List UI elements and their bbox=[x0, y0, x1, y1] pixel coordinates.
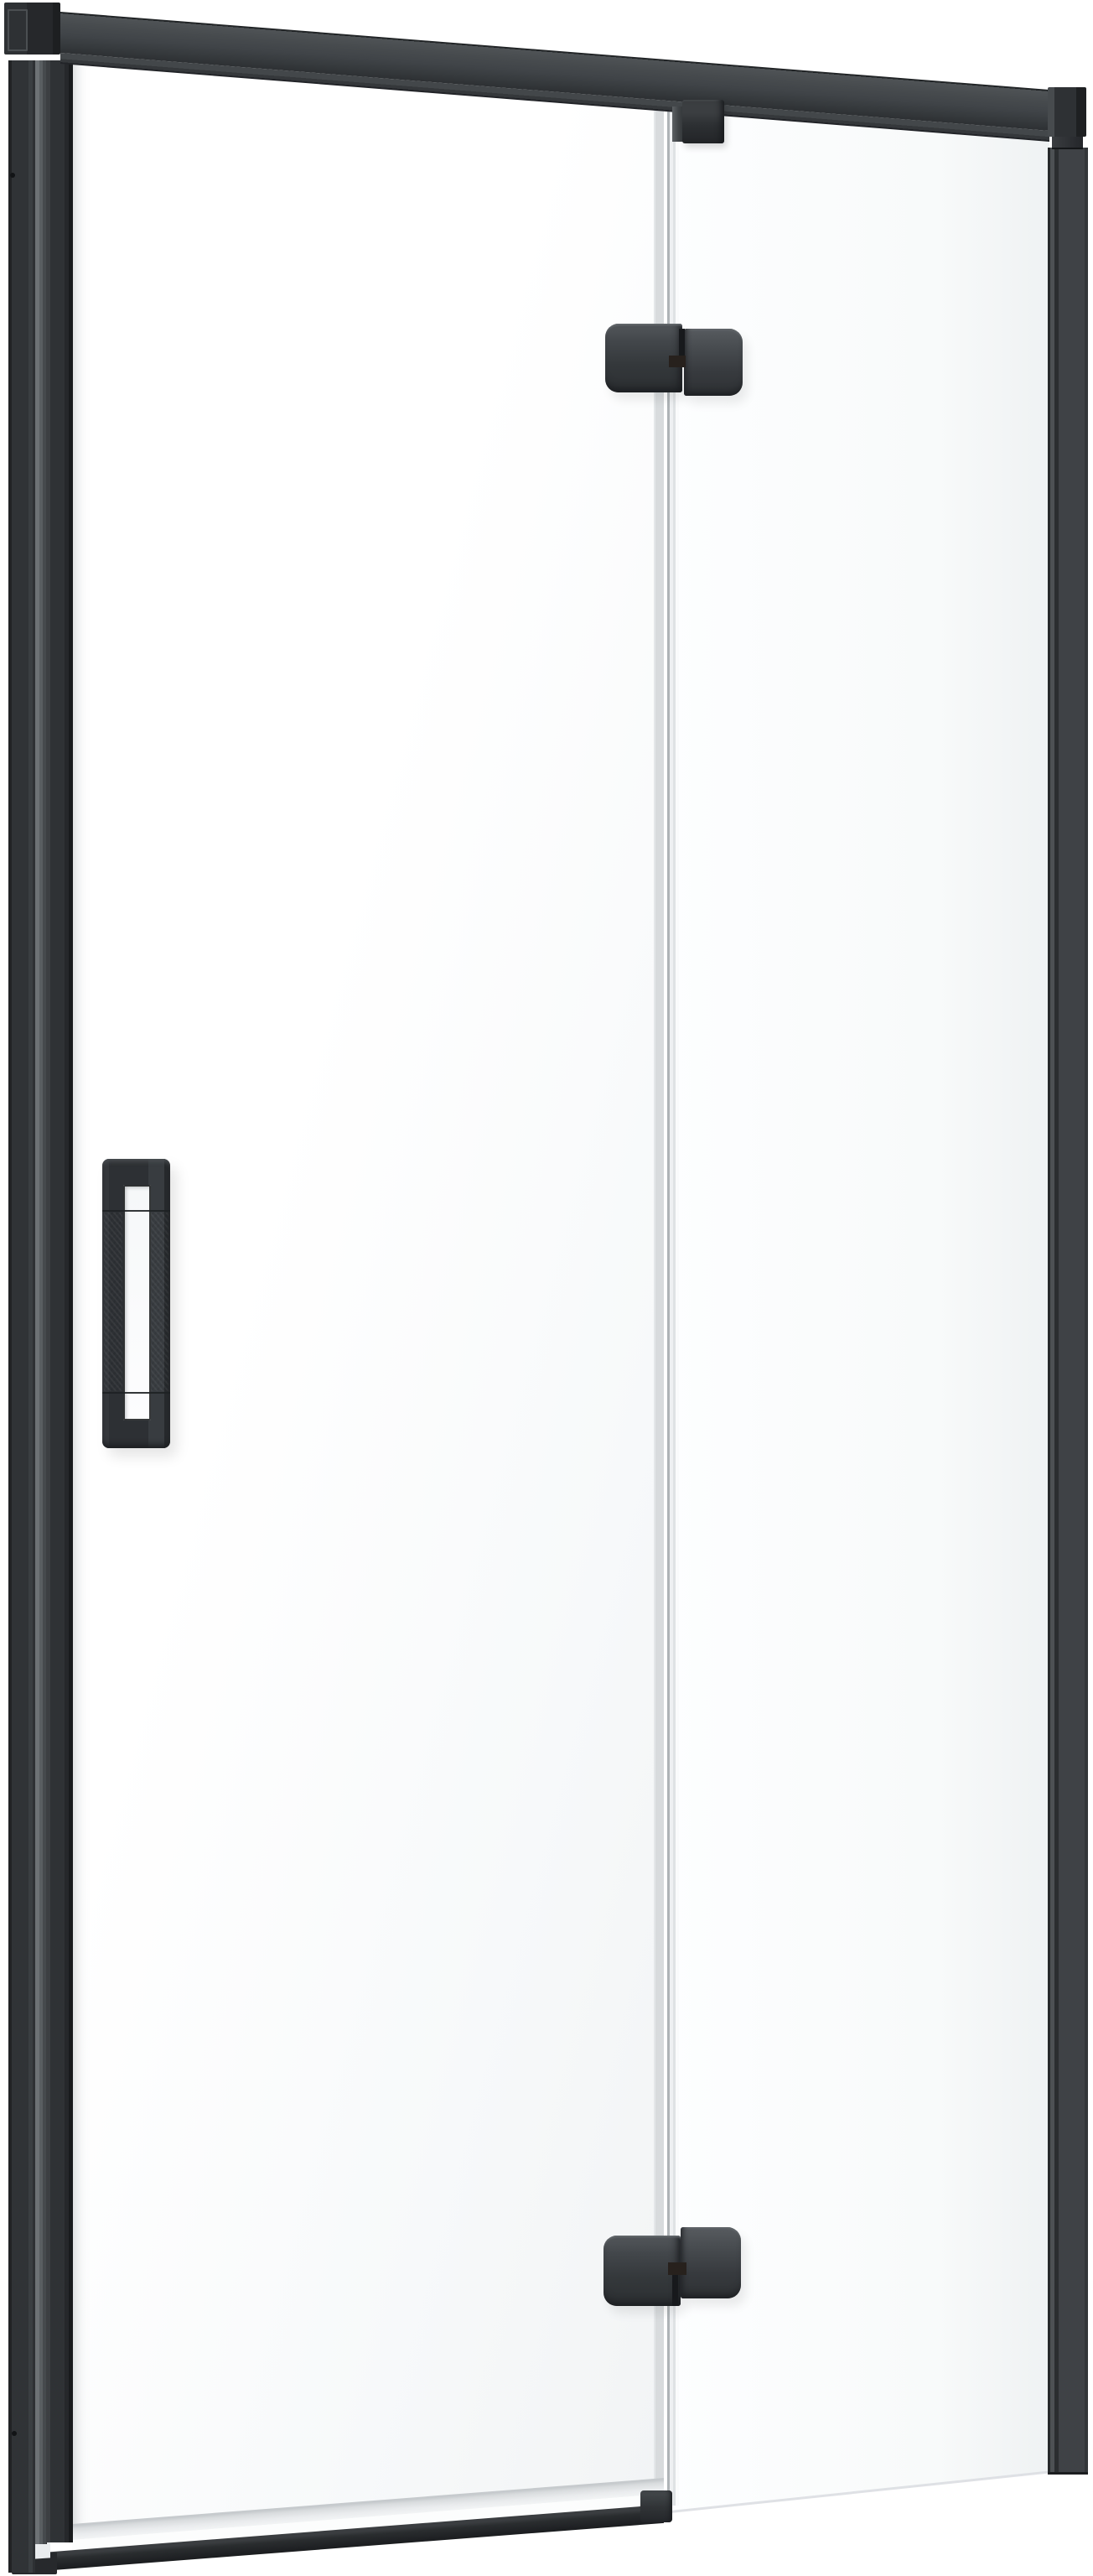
screw-hole-bottom bbox=[12, 2431, 17, 2436]
upper-hinge-panel-block bbox=[684, 329, 743, 396]
left-wall-profile bbox=[8, 60, 35, 2573]
screw-hole-top bbox=[10, 173, 15, 178]
handle-seam-bottom bbox=[102, 1392, 170, 1394]
handle-seam-top bbox=[102, 1210, 170, 1212]
door-handle-side-profile bbox=[46, 60, 73, 2542]
handle-grip-opening bbox=[123, 1185, 151, 1420]
fixed-glass-panel bbox=[667, 102, 1049, 2512]
top-clamp-bracket bbox=[682, 100, 724, 143]
right-wall-profile bbox=[1048, 148, 1088, 2475]
handle-knurl-left bbox=[104, 1213, 122, 1391]
right-rail-end-cap bbox=[1048, 87, 1086, 137]
shower-door-render bbox=[0, 0, 1093, 2576]
right-profile-collar bbox=[1052, 137, 1083, 149]
lower-hinge-pivot-notch bbox=[668, 2262, 686, 2275]
left-end-cap-face bbox=[8, 9, 28, 51]
bottom-rail-end-cap bbox=[640, 2490, 672, 2522]
glass-seam bbox=[654, 109, 679, 2506]
lower-hinge-seam bbox=[672, 2274, 678, 2306]
upper-hinge-pivot-notch bbox=[669, 356, 686, 367]
left-rail-end-cap bbox=[4, 3, 60, 55]
handle-knurl-right bbox=[151, 1213, 168, 1391]
left-profile-glass-channel bbox=[35, 60, 47, 2544]
lower-hinge-panel-block bbox=[681, 2227, 741, 2298]
